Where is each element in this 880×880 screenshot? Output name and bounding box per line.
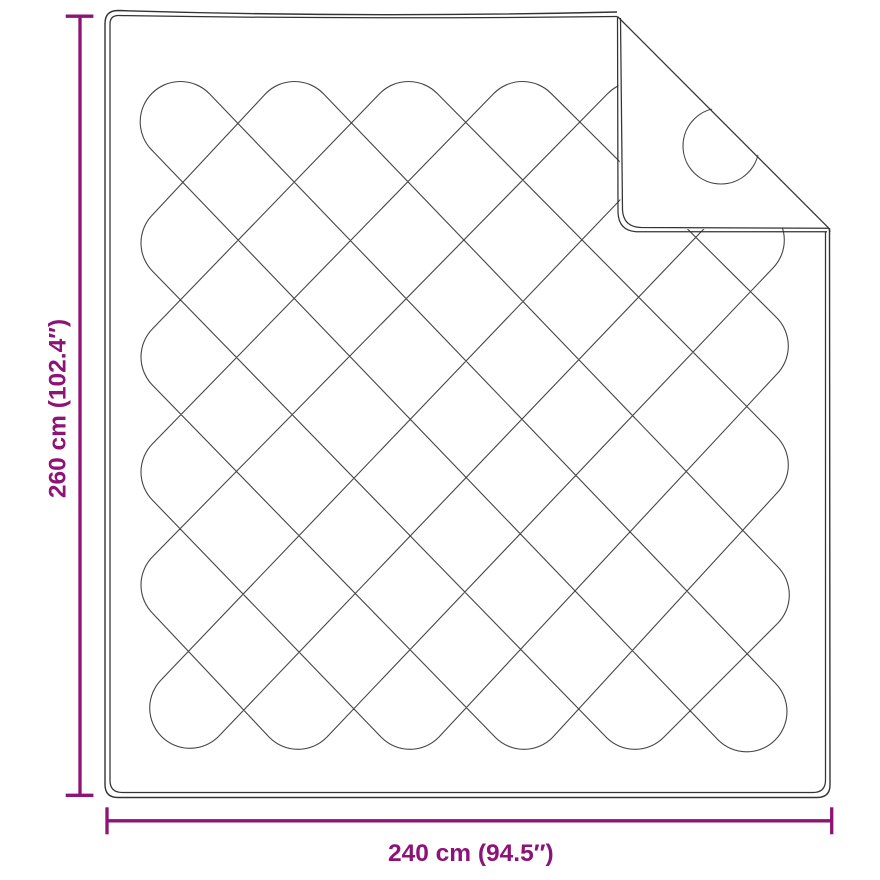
svg-text:260 cm (102.4″): 260 cm (102.4″) [45,319,72,498]
svg-text:240 cm (94.5″): 240 cm (94.5″) [388,840,554,867]
